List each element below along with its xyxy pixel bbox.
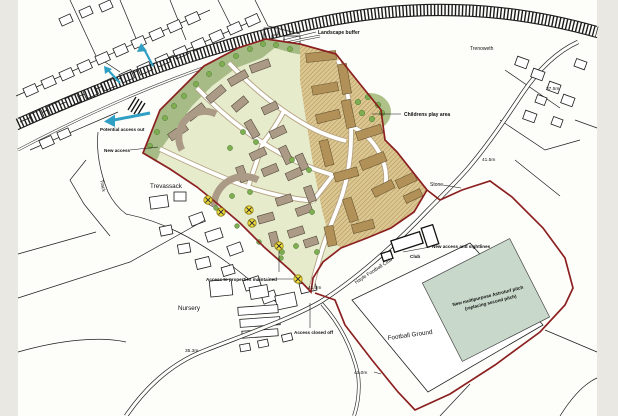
label-potential-access: Potential access out	[100, 127, 145, 132]
label-club: Club	[410, 254, 420, 259]
label-elev-37-5: 37.5m	[546, 86, 559, 92]
label-landscape-buffer: Landscape buffer	[318, 30, 360, 36]
label-new-access: New access	[104, 148, 130, 153]
site-plan-map: Landscape buffer Trenoweth 37.5m Childre…	[0, 0, 618, 416]
label-childrens-play-area: Childrens play area	[404, 112, 450, 118]
label-access-closed: Access closed off	[294, 330, 334, 335]
label-elev-35-3: 35.3m	[185, 348, 198, 354]
label-access-maintained: Access to properties maintained	[206, 277, 277, 282]
label-elev-41-5: 41.5m	[482, 157, 495, 163]
label-elev-43-0: 43.0m	[354, 370, 367, 376]
site-plan-image: Landscape buffer Trenoweth 37.5m Childre…	[0, 0, 618, 416]
label-trenoweth: Trenoweth	[470, 46, 494, 52]
label-stone: Stone	[430, 182, 443, 188]
label-new-access-sightlines: New access and sightlines	[432, 244, 491, 249]
label-nursery: Nursery	[178, 305, 201, 312]
label-elev-41-0: 41.0m	[308, 285, 321, 291]
label-trevassack: Trevassack	[150, 183, 183, 190]
